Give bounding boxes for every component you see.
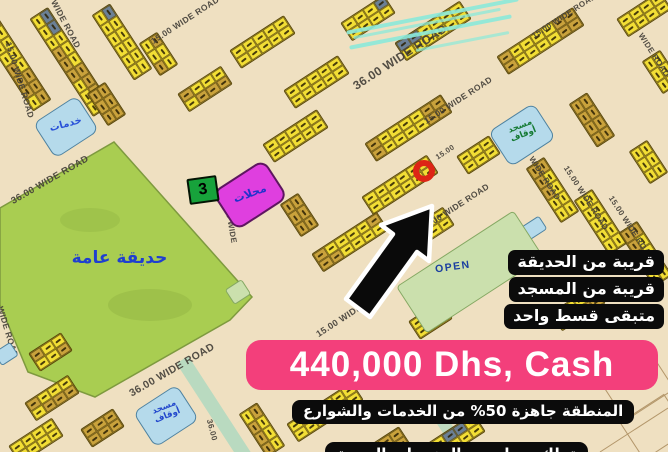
feature-badge-park: قريبة من الحديقة bbox=[508, 250, 664, 275]
price-banner: 440,000 Dhs, Cash bbox=[246, 340, 658, 390]
price-text: 440,000 Dhs, Cash bbox=[290, 345, 614, 385]
note-area-ready: المنطقة جاهزة 50% من الخدمات والشوارع bbox=[292, 400, 634, 424]
plot-map: 15.00 WIDE ROADWIDE ROAD15.00 WIDE ROAD3… bbox=[0, 0, 668, 452]
feature-badge-mosque: قريبة من المسجد bbox=[509, 277, 664, 302]
note-freehold: تملك حر لجميع الجنسيات العربية bbox=[325, 442, 588, 452]
feature-badge-installment: متبقى قسط واحد bbox=[504, 304, 664, 329]
